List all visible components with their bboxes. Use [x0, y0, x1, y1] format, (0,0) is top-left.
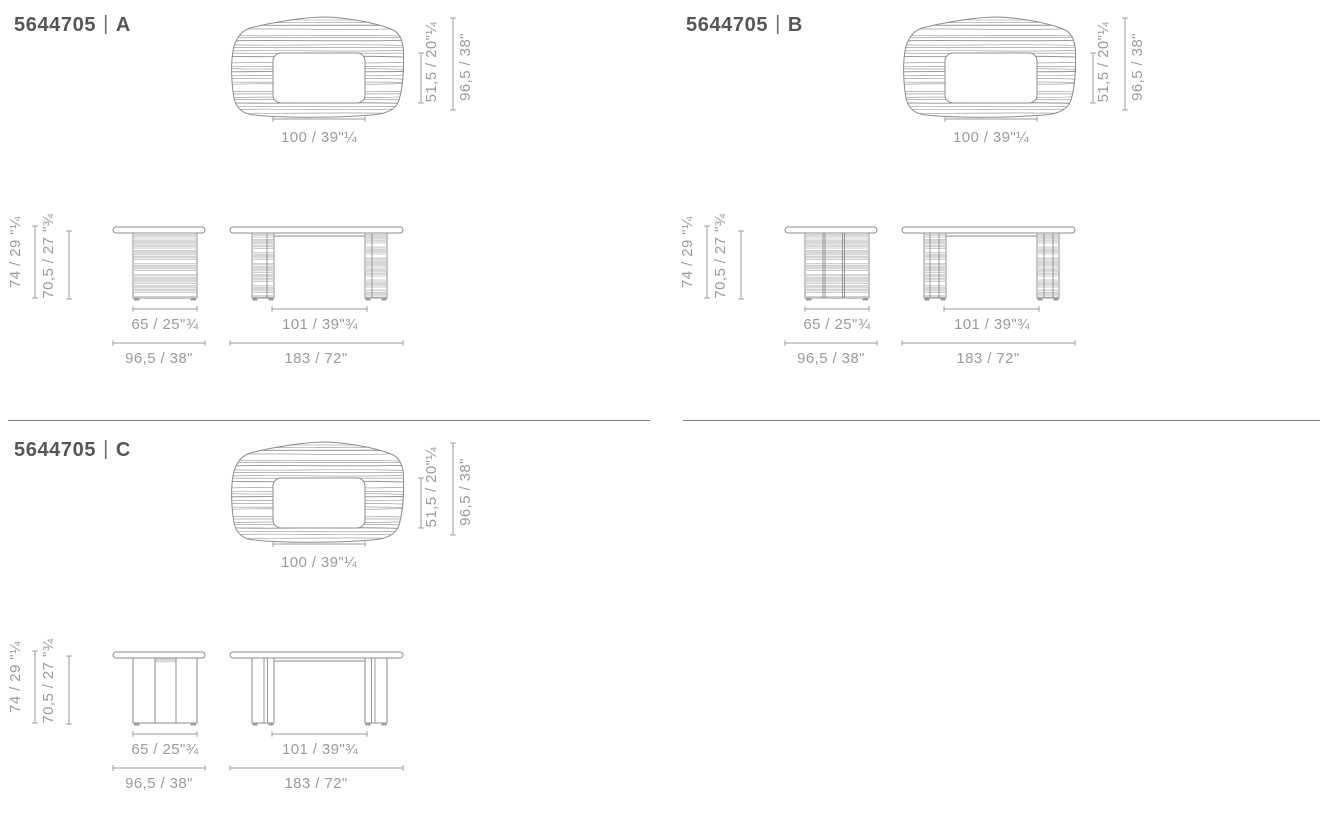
top-view [231, 17, 404, 117]
title-separator: | [768, 13, 788, 35]
pedestal-slats [806, 234, 868, 297]
right-leg-bg [365, 658, 387, 723]
technical-drawing: 100 / 39"¼ 51,5 / 20"¼ 96,5 / 38" 74 / 2… [0, 0, 664, 400]
variant-letter: A [116, 14, 131, 36]
end-elevation [113, 227, 205, 301]
variant-letter: C [116, 439, 131, 461]
left-leg-foot-inner [269, 298, 274, 301]
pedestal-center-plank [155, 658, 176, 723]
dim-label-total-height: 74 / 29 "¼ [7, 641, 24, 713]
dim-label-top-depth: 96,5 / 38" [457, 458, 474, 526]
front-elevation [902, 227, 1075, 301]
dim-label-cutout-depth: 51,5 / 20"¼ [1095, 22, 1112, 103]
product-code-number: 5644705 [14, 439, 96, 461]
dim-label-total-length: 183 / 72" [284, 775, 347, 792]
dim-label-cutout-depth: 51,5 / 20"¼ [423, 447, 440, 528]
dim-label-side-width: 96,5 / 38" [125, 350, 193, 367]
leg-plank-joints [264, 658, 375, 723]
right-leg-foot [382, 723, 387, 726]
pedestal-foot-left [134, 723, 140, 726]
end-elevation [785, 227, 877, 301]
tabletop-front-profile [902, 227, 1075, 233]
product-code: 5644705|B [686, 14, 803, 37]
right-leg-foot-inner [1038, 298, 1043, 301]
divider-line-left [8, 420, 650, 421]
pedestal-foot-right [863, 298, 869, 301]
title-separator: | [96, 438, 116, 460]
dim-label-leg-span: 101 / 39"¾ [282, 741, 358, 758]
title-separator: | [96, 13, 116, 35]
cutout-rect [945, 53, 1037, 103]
right-leg-foot [382, 298, 387, 301]
left-leg-foot [253, 723, 258, 726]
dim-label-top-width: 100 / 39"¼ [953, 129, 1029, 146]
pedestal-foot-right [191, 723, 197, 726]
dim-label-clearance-height: 70,5 / 27 "¾ [40, 213, 57, 298]
dim-label-clearance-height: 70,5 / 27 "¾ [712, 213, 729, 298]
leg-extra-joints [930, 233, 1053, 298]
leg-inner-planks [939, 233, 1044, 298]
dim-label-base-width: 65 / 25"¾ [131, 741, 198, 758]
dim-label-top-depth: 96,5 / 38" [457, 33, 474, 101]
dim-label-base-width: 65 / 25"¾ [803, 316, 870, 333]
dim-label-clearance-height: 70,5 / 27 "¾ [40, 638, 57, 723]
dim-label-base-width: 65 / 25"¾ [131, 316, 198, 333]
left-leg-bg [252, 658, 274, 723]
dim-label-total-length: 183 / 72" [956, 350, 1019, 367]
panel-b: 5644705|B 100 / 39"¼ 51,5 / 20"¼ 96,5 / … [672, 0, 1336, 400]
pedestal-foot-right [191, 298, 197, 301]
end-elevation [113, 652, 205, 726]
tabletop-side-profile [785, 227, 877, 233]
dim-label-cutout-depth: 51,5 / 20"¼ [423, 22, 440, 103]
panel-c: 5644705|C 100 / 39"¼ 51,5 / 20"¼ 96,5 / … [0, 425, 664, 825]
product-code-number: 5644705 [14, 14, 96, 36]
pedestal-foot-left [806, 298, 812, 301]
pedestal-foot-left [134, 298, 140, 301]
tabletop-side-profile [113, 652, 205, 658]
leg-inner-planks [267, 233, 372, 298]
panel-a: 5644705|A 100 / 39"¼ 51,5 / 20"¼ 96,5 / … [0, 0, 664, 400]
top-view [903, 17, 1076, 117]
right-leg-foot-inner [366, 723, 371, 726]
dim-label-top-width: 100 / 39"¼ [281, 129, 357, 146]
top-view [231, 442, 404, 542]
dim-label-side-width: 96,5 / 38" [125, 775, 193, 792]
right-leg-foot-inner [366, 298, 371, 301]
dim-label-leg-span: 101 / 39"¾ [954, 316, 1030, 333]
dim-label-top-width: 100 / 39"¼ [281, 554, 357, 571]
tabletop-front-profile [230, 652, 403, 658]
left-leg-foot [253, 298, 258, 301]
tabletop-side-profile [113, 227, 205, 233]
dim-label-leg-span: 101 / 39"¾ [282, 316, 358, 333]
cutout-rect [273, 478, 365, 528]
front-elevation [230, 652, 403, 726]
divider-line-right [683, 420, 1320, 421]
spec-sheet: 5644705|A 100 / 39"¼ 51,5 / 20"¼ 96,5 / … [0, 0, 1336, 825]
dim-label-side-width: 96,5 / 38" [797, 350, 865, 367]
left-leg-foot-inner [941, 298, 946, 301]
left-leg-foot-inner [269, 723, 274, 726]
dim-label-total-height: 74 / 29 "¼ [679, 216, 696, 288]
left-leg-foot [925, 298, 930, 301]
front-elevation [230, 227, 403, 301]
pedestal-slats [134, 234, 196, 297]
right-leg-foot [1054, 298, 1059, 301]
technical-drawing: 100 / 39"¼ 51,5 / 20"¼ 96,5 / 38" 74 / 2… [0, 425, 664, 825]
cutout-rect [273, 53, 365, 103]
tabletop-front-profile [230, 227, 403, 233]
dim-label-total-height: 74 / 29 "¼ [7, 216, 24, 288]
dim-label-total-length: 183 / 72" [284, 350, 347, 367]
product-code: 5644705|C [14, 439, 131, 462]
product-code: 5644705|A [14, 14, 131, 37]
product-code-number: 5644705 [686, 14, 768, 36]
dim-label-top-depth: 96,5 / 38" [1129, 33, 1146, 101]
variant-letter: B [788, 14, 803, 36]
technical-drawing: 100 / 39"¼ 51,5 / 20"¼ 96,5 / 38" 74 / 2… [672, 0, 1336, 400]
